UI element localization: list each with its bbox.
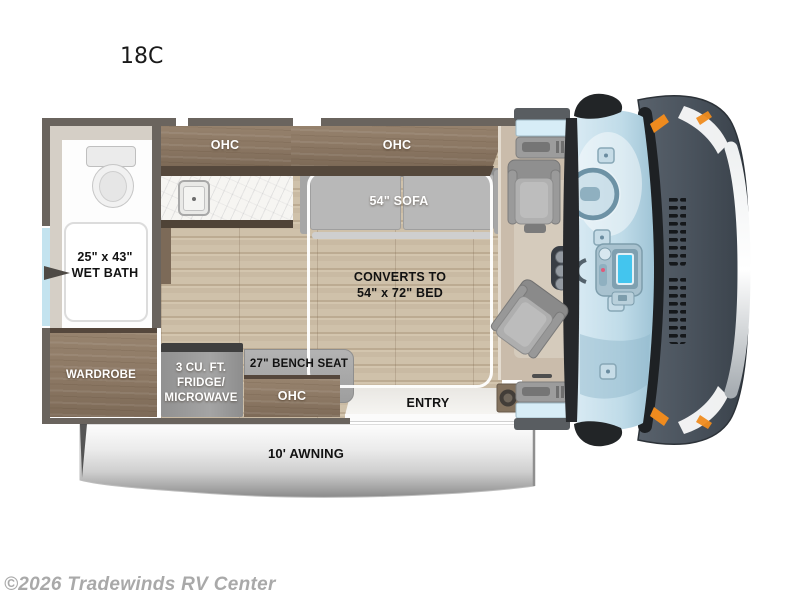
fridge-label-line2: FRIDGE/ (177, 376, 225, 391)
model-title: 18C (120, 44, 163, 69)
van-cab (488, 84, 778, 456)
a-pillar (563, 118, 579, 422)
grille-vent-icon (669, 196, 686, 266)
bench-ohc-label: OHC (278, 389, 306, 405)
bench-seat-label: 27" BENCH SEAT (250, 357, 348, 372)
sofa-label: 54" SOFA (370, 194, 429, 210)
door-window-bottom (516, 403, 568, 418)
door-window-top (516, 120, 568, 136)
door-swing-icon (44, 266, 70, 280)
kitchen-ohc-label: OHC (211, 138, 239, 154)
wet-bath-label-name: WET BATH (72, 266, 139, 282)
cabinet-side-panel (161, 228, 171, 284)
awning-label: 10' AWNING (268, 446, 344, 462)
sink-faucet-dot (192, 197, 196, 201)
counter-front-edge (161, 220, 293, 228)
grille-vent-icon (669, 276, 686, 344)
wardrobe-label: WARDROBE (66, 368, 136, 383)
wall-bath-right (152, 126, 161, 328)
dealer-watermark: ©2026 Tradewinds RV Center (4, 574, 276, 596)
sofa-ohc-edge (291, 166, 494, 176)
window-top-1 (176, 118, 188, 126)
fridge-label-line3: MICROWAVE (164, 391, 237, 406)
center-console (596, 244, 642, 305)
fridge-label-line1: 3 CU. FT. (176, 361, 226, 376)
cab-door-bottom (514, 374, 570, 430)
wall-bottom (42, 418, 350, 424)
sofa-ohc-label: OHC (383, 138, 411, 154)
cab-door-top (514, 108, 570, 166)
wet-bath-label-size: 25" x 43" (77, 250, 132, 266)
screen-icon (617, 254, 633, 284)
toilet-bowl-inner (99, 171, 127, 202)
wall-top (42, 118, 537, 126)
window-top-2 (293, 118, 321, 126)
bed-label-line1: CONVERTS TO (354, 270, 446, 286)
bed-label-line2: 54" x 72" BED (357, 286, 443, 302)
kitchen-ohc-edge (161, 166, 291, 176)
driver-seat (508, 160, 560, 233)
floorplan-canvas: 18C ©2026 Tradewinds RV Center 10' AWNIN… (0, 0, 800, 600)
entry-label: ENTRY (407, 396, 450, 412)
awning-shape (77, 424, 537, 502)
